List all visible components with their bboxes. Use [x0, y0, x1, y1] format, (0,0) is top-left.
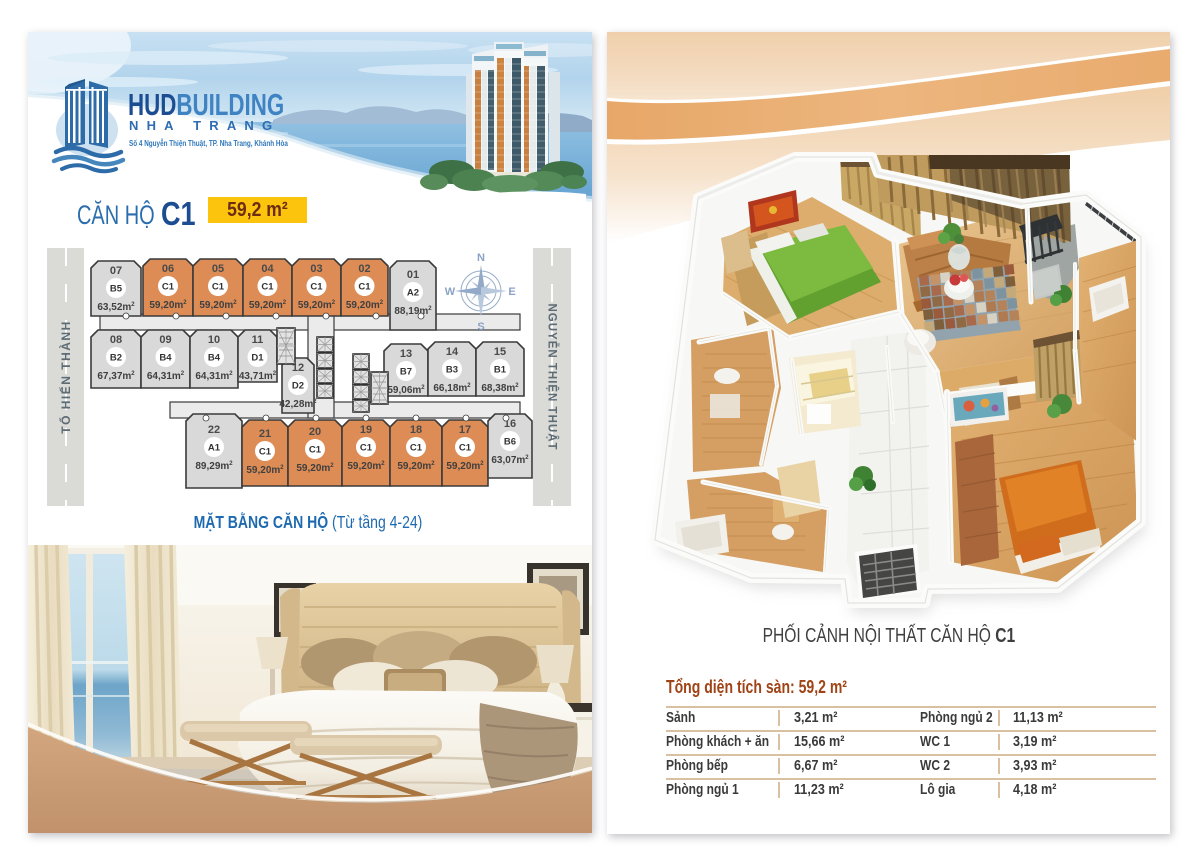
svg-text:D2: D2	[292, 381, 304, 392]
svg-text:59,20m2: 59,20m2	[249, 300, 287, 311]
svg-text:42,28m2: 42,28m2	[279, 399, 317, 410]
svg-text:18: 18	[410, 424, 422, 436]
svg-text:C1: C1	[259, 447, 272, 458]
svg-text:59,20m2: 59,20m2	[397, 461, 435, 472]
svg-text:67,37m2: 67,37m2	[97, 371, 135, 382]
svg-text:59,20m2: 59,20m2	[347, 461, 385, 472]
svg-text:64,31m2: 64,31m2	[147, 371, 185, 382]
svg-text:B1: B1	[494, 365, 507, 376]
svg-text:64,31m2: 64,31m2	[195, 371, 233, 382]
svg-text:C1: C1	[162, 282, 175, 293]
svg-text:68,38m2: 68,38m2	[481, 383, 519, 394]
svg-text:59,20m2: 59,20m2	[296, 463, 334, 474]
svg-text:59,20m2: 59,20m2	[446, 461, 484, 472]
svg-text:06: 06	[162, 263, 174, 275]
svg-text:B4: B4	[208, 353, 221, 364]
svg-text:N: N	[477, 252, 485, 264]
svg-text:59,06m2: 59,06m2	[387, 385, 425, 396]
svg-text:22: 22	[208, 424, 220, 436]
svg-text:C1: C1	[360, 443, 373, 454]
svg-text:A1: A1	[208, 443, 221, 454]
svg-text:C1: C1	[459, 443, 472, 454]
svg-text:A2: A2	[407, 288, 419, 299]
svg-text:04: 04	[261, 263, 274, 275]
svg-text:01: 01	[407, 269, 419, 281]
svg-text:W: W	[445, 286, 456, 298]
svg-text:63,52m2: 63,52m2	[97, 302, 135, 313]
svg-text:09: 09	[159, 334, 171, 346]
svg-text:07: 07	[110, 265, 122, 277]
svg-text:08: 08	[110, 334, 122, 346]
svg-text:14: 14	[446, 346, 459, 358]
svg-text:20: 20	[309, 426, 321, 438]
svg-text:C1: C1	[410, 443, 423, 454]
svg-text:B2: B2	[110, 353, 122, 364]
svg-text:10: 10	[208, 334, 220, 346]
svg-text:59,20m2: 59,20m2	[199, 300, 237, 311]
svg-text:B4: B4	[159, 353, 172, 364]
svg-text:88,19m2: 88,19m2	[394, 306, 432, 317]
svg-text:17: 17	[459, 424, 471, 436]
svg-text:C1: C1	[358, 282, 371, 293]
svg-text:11: 11	[252, 334, 264, 346]
svg-text:B5: B5	[110, 284, 123, 295]
svg-text:59,20m2: 59,20m2	[346, 300, 384, 311]
svg-text:B6: B6	[504, 437, 516, 448]
svg-text:C1: C1	[261, 282, 274, 293]
svg-text:15: 15	[494, 346, 506, 358]
svg-text:02: 02	[358, 263, 370, 275]
svg-text:19: 19	[360, 424, 372, 436]
svg-text:63,07m2: 63,07m2	[491, 455, 529, 466]
svg-text:66,18m2: 66,18m2	[433, 383, 471, 394]
svg-text:C1: C1	[310, 282, 323, 293]
svg-text:E: E	[508, 286, 515, 298]
svg-text:B7: B7	[400, 367, 412, 378]
svg-text:05: 05	[212, 263, 224, 275]
svg-text:59,20m2: 59,20m2	[149, 300, 187, 311]
svg-text:S: S	[477, 321, 484, 333]
svg-text:03: 03	[310, 263, 322, 275]
svg-text:59,20m2: 59,20m2	[298, 300, 336, 311]
svg-text:B3: B3	[446, 365, 458, 376]
svg-text:C1: C1	[309, 445, 322, 456]
svg-text:59,20m2: 59,20m2	[246, 465, 284, 476]
svg-text:89,29m2: 89,29m2	[195, 461, 233, 472]
svg-text:D1: D1	[251, 353, 264, 364]
svg-text:C1: C1	[212, 282, 225, 293]
svg-text:43,71m2: 43,71m2	[239, 371, 277, 382]
svg-text:13: 13	[400, 348, 412, 360]
svg-text:21: 21	[259, 428, 271, 440]
